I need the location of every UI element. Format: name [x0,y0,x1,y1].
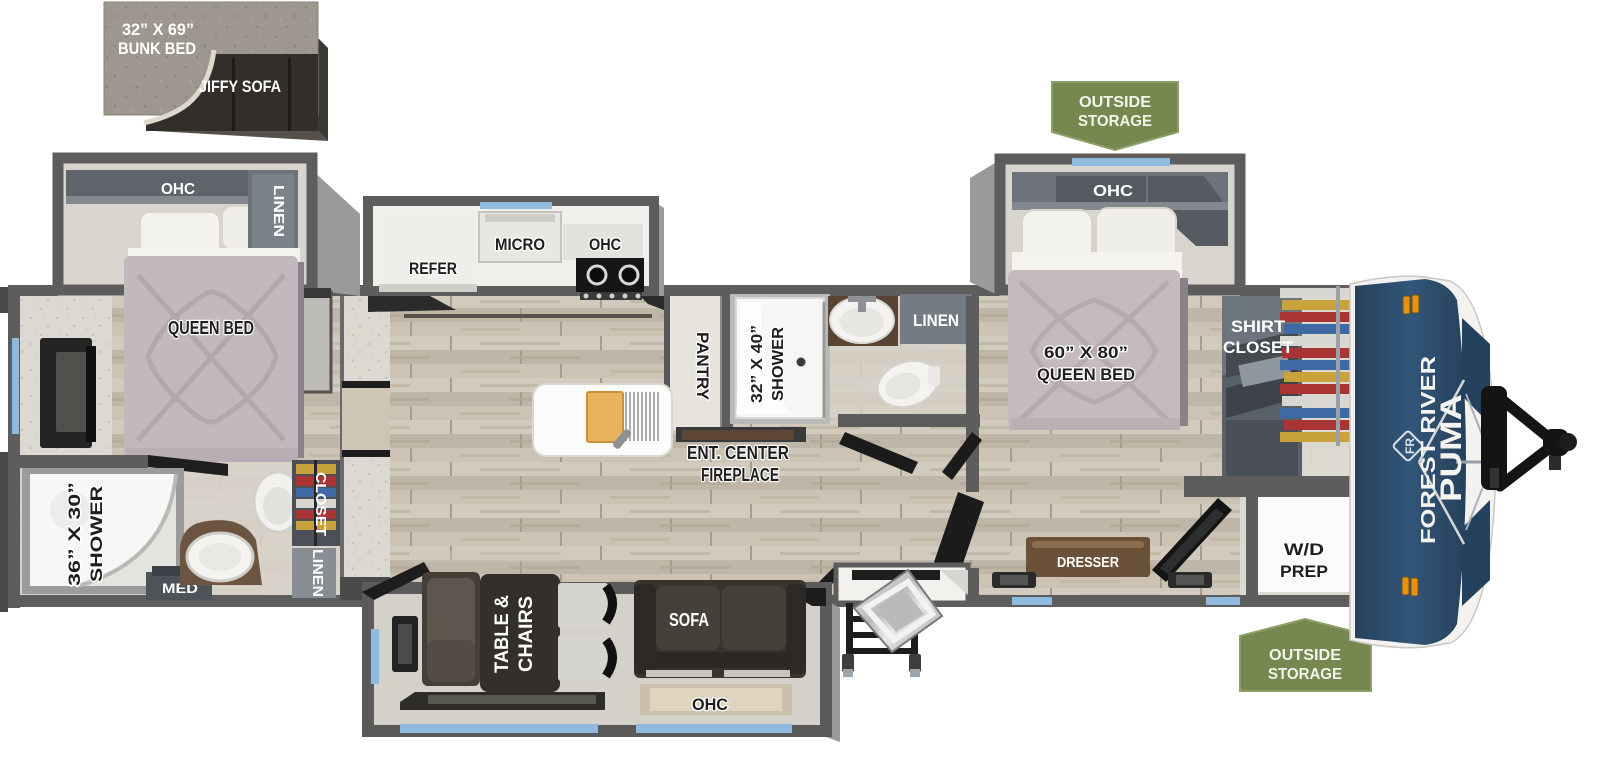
svg-text:FR: FR [1403,438,1417,454]
svg-text:CLOSET: CLOSET [1223,338,1294,357]
svg-text:OHC: OHC [589,235,621,254]
svg-text:W/D: W/D [1284,540,1324,559]
svg-text:SOFA: SOFA [669,610,709,630]
svg-text:TABLE &: TABLE & [492,595,513,673]
svg-text:32” X 40”: 32” X 40” [749,325,766,403]
svg-text:60” X 80”: 60” X 80” [1044,343,1128,362]
svg-text:STORAGE: STORAGE [1268,666,1342,683]
svg-text:OHC: OHC [1093,183,1133,200]
svg-text:SHOWER: SHOWER [87,486,106,582]
svg-text:SHIRT: SHIRT [1231,317,1286,336]
svg-text:JIFFY SOFA: JIFFY SOFA [199,77,281,96]
svg-text:STORAGE: STORAGE [1078,113,1152,130]
svg-text:FIREPLACE: FIREPLACE [701,465,779,485]
svg-text:CLOSET: CLOSET [312,472,329,536]
svg-text:OHC: OHC [161,181,195,198]
svg-text:OUTSIDE: OUTSIDE [1079,94,1151,111]
svg-text:ENT. CENTER: ENT. CENTER [687,443,789,463]
svg-text:DRESSER: DRESSER [1057,554,1119,571]
svg-text:LINEN: LINEN [913,311,959,330]
svg-text:LINEN: LINEN [309,549,326,597]
svg-text:OHC: OHC [692,695,728,714]
svg-text:REFER: REFER [409,259,457,278]
svg-text:MICRO: MICRO [495,235,545,254]
svg-text:PREP: PREP [1280,562,1328,581]
svg-text:OUTSIDE: OUTSIDE [1269,647,1341,664]
svg-text:BUNK BED: BUNK BED [118,39,196,58]
svg-text:36” X 30”: 36” X 30” [65,482,84,586]
svg-text:32” X 69”: 32” X 69” [122,20,194,39]
svg-text:QUEEN BED: QUEEN BED [1037,365,1135,384]
svg-text:QUEEN BED: QUEEN BED [168,318,254,338]
svg-text:PUMA: PUMA [1435,394,1468,502]
svg-text:LINEN: LINEN [270,185,287,237]
svg-text:PANTRY: PANTRY [693,332,712,401]
svg-text:CHAIRS: CHAIRS [516,596,537,672]
svg-text:SHOWER: SHOWER [770,327,787,401]
